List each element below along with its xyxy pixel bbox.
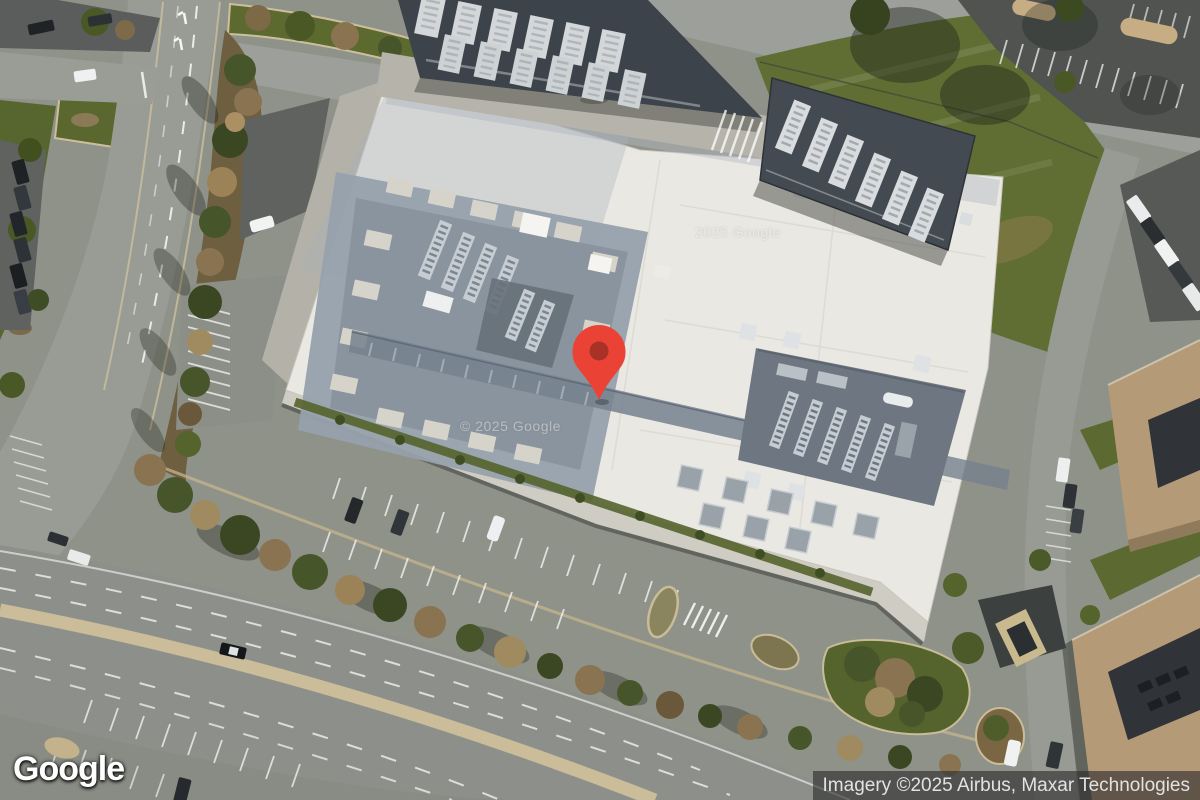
google-logo[interactable]: Google xyxy=(13,750,124,789)
satellite-imagery xyxy=(0,0,1200,800)
attribution-bar: Imagery ©2025 Airbus, Maxar Technologies xyxy=(813,771,1200,800)
map-marker-dot xyxy=(590,342,609,361)
attribution-text: Imagery ©2025 Airbus, Maxar Technologies xyxy=(823,775,1190,796)
map-viewport[interactable]: 2025 Google © 2025 Google Google Imagery… xyxy=(0,0,1200,800)
